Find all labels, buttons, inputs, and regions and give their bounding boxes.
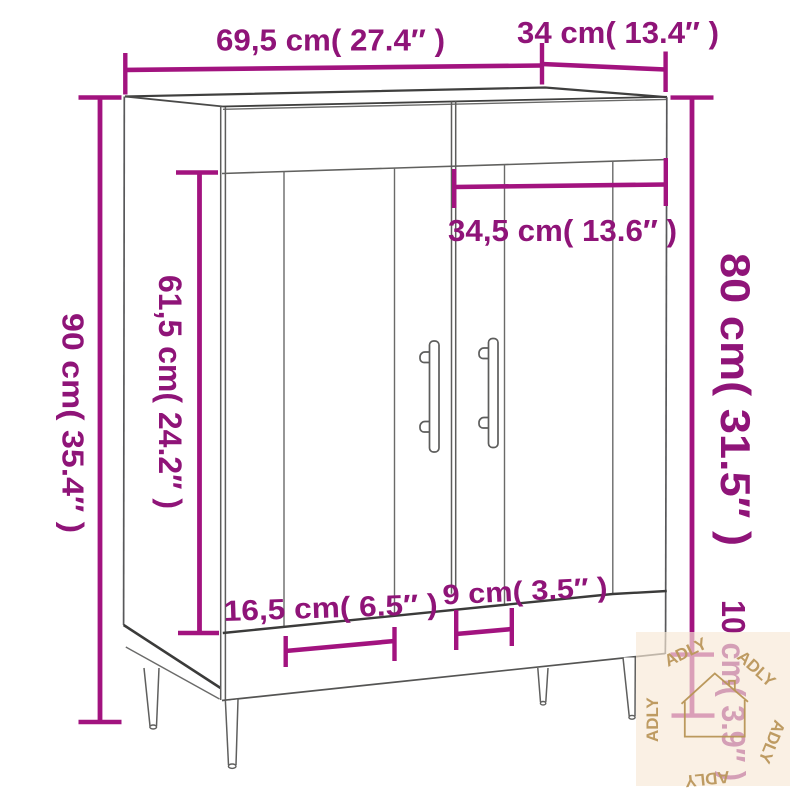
svg-text:80 cm( 31.5″ ): 80 cm( 31.5″ ) (712, 253, 759, 546)
svg-text:ADLY: ADLY (643, 697, 662, 742)
svg-text:90 cm( 35.4″ ): 90 cm( 35.4″ ) (56, 313, 90, 533)
svg-text:34,5 cm( 13.6″ ): 34,5 cm( 13.6″ ) (448, 214, 677, 248)
svg-text:61,5 cm( 24.2″ ): 61,5 cm( 24.2″ ) (152, 275, 188, 509)
svg-text:69,5 cm( 27.4″ ): 69,5 cm( 27.4″ ) (216, 24, 445, 58)
svg-text:34 cm( 13.4″ ): 34 cm( 13.4″ ) (517, 16, 719, 50)
